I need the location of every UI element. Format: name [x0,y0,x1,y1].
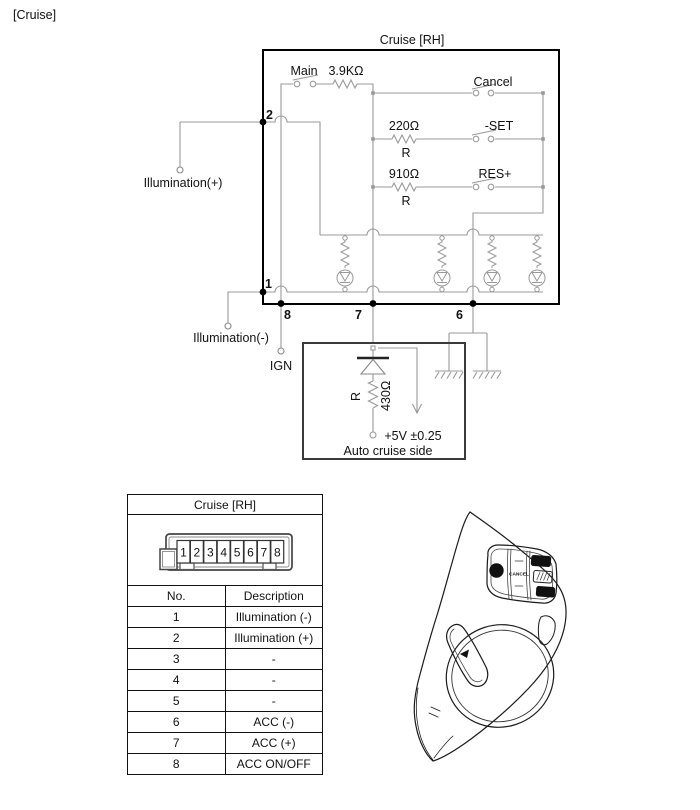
wire-illum-minus [228,292,263,323]
wire-main-row [316,80,373,93]
connector-pin-8: 8 [274,546,281,560]
row-no: 1 [128,607,226,628]
connector-notches [180,563,276,570]
wire-led-bottom-rail [263,286,543,292]
connector-pin-4: 4 [220,546,227,560]
res-button-label: RES+ [535,558,547,564]
wire-res-row [373,183,543,191]
row-desc: ACC (-) [225,712,323,733]
module-caption: Auto cruise side [344,444,433,458]
rocker-middle-key [533,570,552,583]
pin1-number: 1 [265,277,272,291]
illum-plus-terminal [177,167,183,173]
wire-illum-plus [180,122,263,167]
res-button: RES+ [531,555,552,567]
ground-icon-left [435,371,463,379]
table-title: Cruise [RH] [128,495,323,515]
set-resistor-label: 220Ω [389,119,419,133]
connector-lock-tab [160,549,177,570]
pin7-dot [370,300,377,307]
cancel-button-label: CANCEL [509,572,529,578]
row-desc: ACC (+) [225,733,323,754]
connector-pin-2: 2 [194,546,201,560]
table-header-row: No. Description [128,586,323,607]
connector-image-row: 1 2 3 4 5 6 7 8 [128,515,323,586]
module-resistor-value: 430Ω [379,381,393,411]
connector-drawing: 1 2 3 4 5 6 7 8 [128,515,321,585]
led-branch-3 [484,236,500,292]
illumination-led-branches [337,236,545,292]
row-desc: Illumination (+) [225,628,323,649]
connector-pin-5: 5 [234,546,241,560]
illum-minus-terminal [225,323,231,329]
wire-pin2-rail [263,116,320,235]
table-row: 2 Illumination (+) [128,628,323,649]
module-voltage: +5V ±0.25 [384,429,441,443]
ground-symbols [435,371,501,379]
led-branch-2 [434,236,450,292]
on-off-button: ON OFF [489,563,503,577]
wire-set-row [373,135,543,143]
connector-pin-7: 7 [261,546,268,560]
wire-led-top-rail [320,229,543,235]
led-branch-1 [337,236,353,292]
cancel-label: Cancel [474,75,513,89]
connector-pin-3: 3 [207,546,214,560]
row-no: 5 [128,691,226,712]
row-no: 7 [128,733,226,754]
row-desc: - [225,649,323,670]
connector-pin-1: 1 [180,546,187,560]
table-row: 7 ACC (+) [128,733,323,754]
table-title-row: Cruise [RH] [128,495,323,515]
module-entry-marker [371,346,375,350]
row-no: 2 [128,628,226,649]
cruise-circuit-schematic: Cruise [RH] [0,0,700,480]
col-header-description: Description [225,586,323,607]
res-resistor-label: 910Ω [389,167,419,181]
spoke-outline [414,512,566,761]
pin6-dot [470,300,477,307]
row-no: 6 [128,712,226,733]
steering-wheel-switch-illustration: ON OFF CANCEL RES+ SET- [400,500,700,810]
rim-tick-marks [429,707,440,717]
ground-icon-right [473,371,501,379]
row-no: 4 [128,670,226,691]
table-row: 8 ACC ON/OFF [128,754,323,775]
external-terminals [177,167,284,354]
pin6-number: 6 [456,308,463,322]
table-row: 1 Illumination (-) [128,607,323,628]
row-no: 8 [128,754,226,775]
capsule-button-icon [460,650,469,659]
ign-terminal [278,348,284,354]
rim-bottom-edge [434,736,453,758]
set-button: SET- [536,586,556,598]
table-row: 3 - [128,649,323,670]
row-desc: ACC ON/OFF [225,754,323,775]
illumination-plus-label: Illumination(+) [144,176,223,190]
connector-pin-6: 6 [247,546,254,560]
ign-label: IGN [270,359,292,373]
module-resistor [369,374,378,432]
pin8-dot [278,300,285,307]
wire-pin6-ground [449,304,487,371]
wire-pin8-riser [281,84,293,303]
on-off-button-top-label: ON [493,565,499,570]
led-branch-4 [529,236,545,292]
table-row: 4 - [128,670,323,691]
table-row: 5 - [128,691,323,712]
set-button-label: SET- [540,589,551,595]
table-row: 6 ACC (-) [128,712,323,733]
pin7-number: 7 [355,308,362,322]
r2-label: R [401,194,410,208]
diode-icon [357,358,389,374]
pin-numbers: 2 1 8 7 6 [265,108,463,322]
auto-cruise-module: R 430Ω +5V ±0.25 Auto cruise side [303,343,465,459]
row-desc: - [225,691,323,712]
r1-label: R [401,146,410,160]
module-5v-terminal [370,432,376,438]
pin2-number: 2 [266,108,273,122]
pin8-number: 8 [284,308,291,322]
row-no: 3 [128,649,226,670]
col-header-no: No. [128,586,226,607]
hub-opening-inner [440,618,560,735]
row-desc: Illumination (-) [225,607,323,628]
connector-pinout-table: Cruise [RH] [127,494,323,775]
main-label: Main [290,64,317,78]
main-resistor-label: 3.9KΩ [328,64,363,78]
row-desc: - [225,670,323,691]
connector-drawing-cell: 1 2 3 4 5 6 7 8 [128,515,323,586]
on-off-button-bottom-label: OFF [492,571,501,576]
schematic-title: Cruise [RH] [380,33,445,47]
set-label: -SET [485,119,514,133]
res-label: RES+ [478,167,511,181]
module-r-label: R [349,392,363,401]
illumination-minus-label: Illumination(-) [193,331,269,345]
